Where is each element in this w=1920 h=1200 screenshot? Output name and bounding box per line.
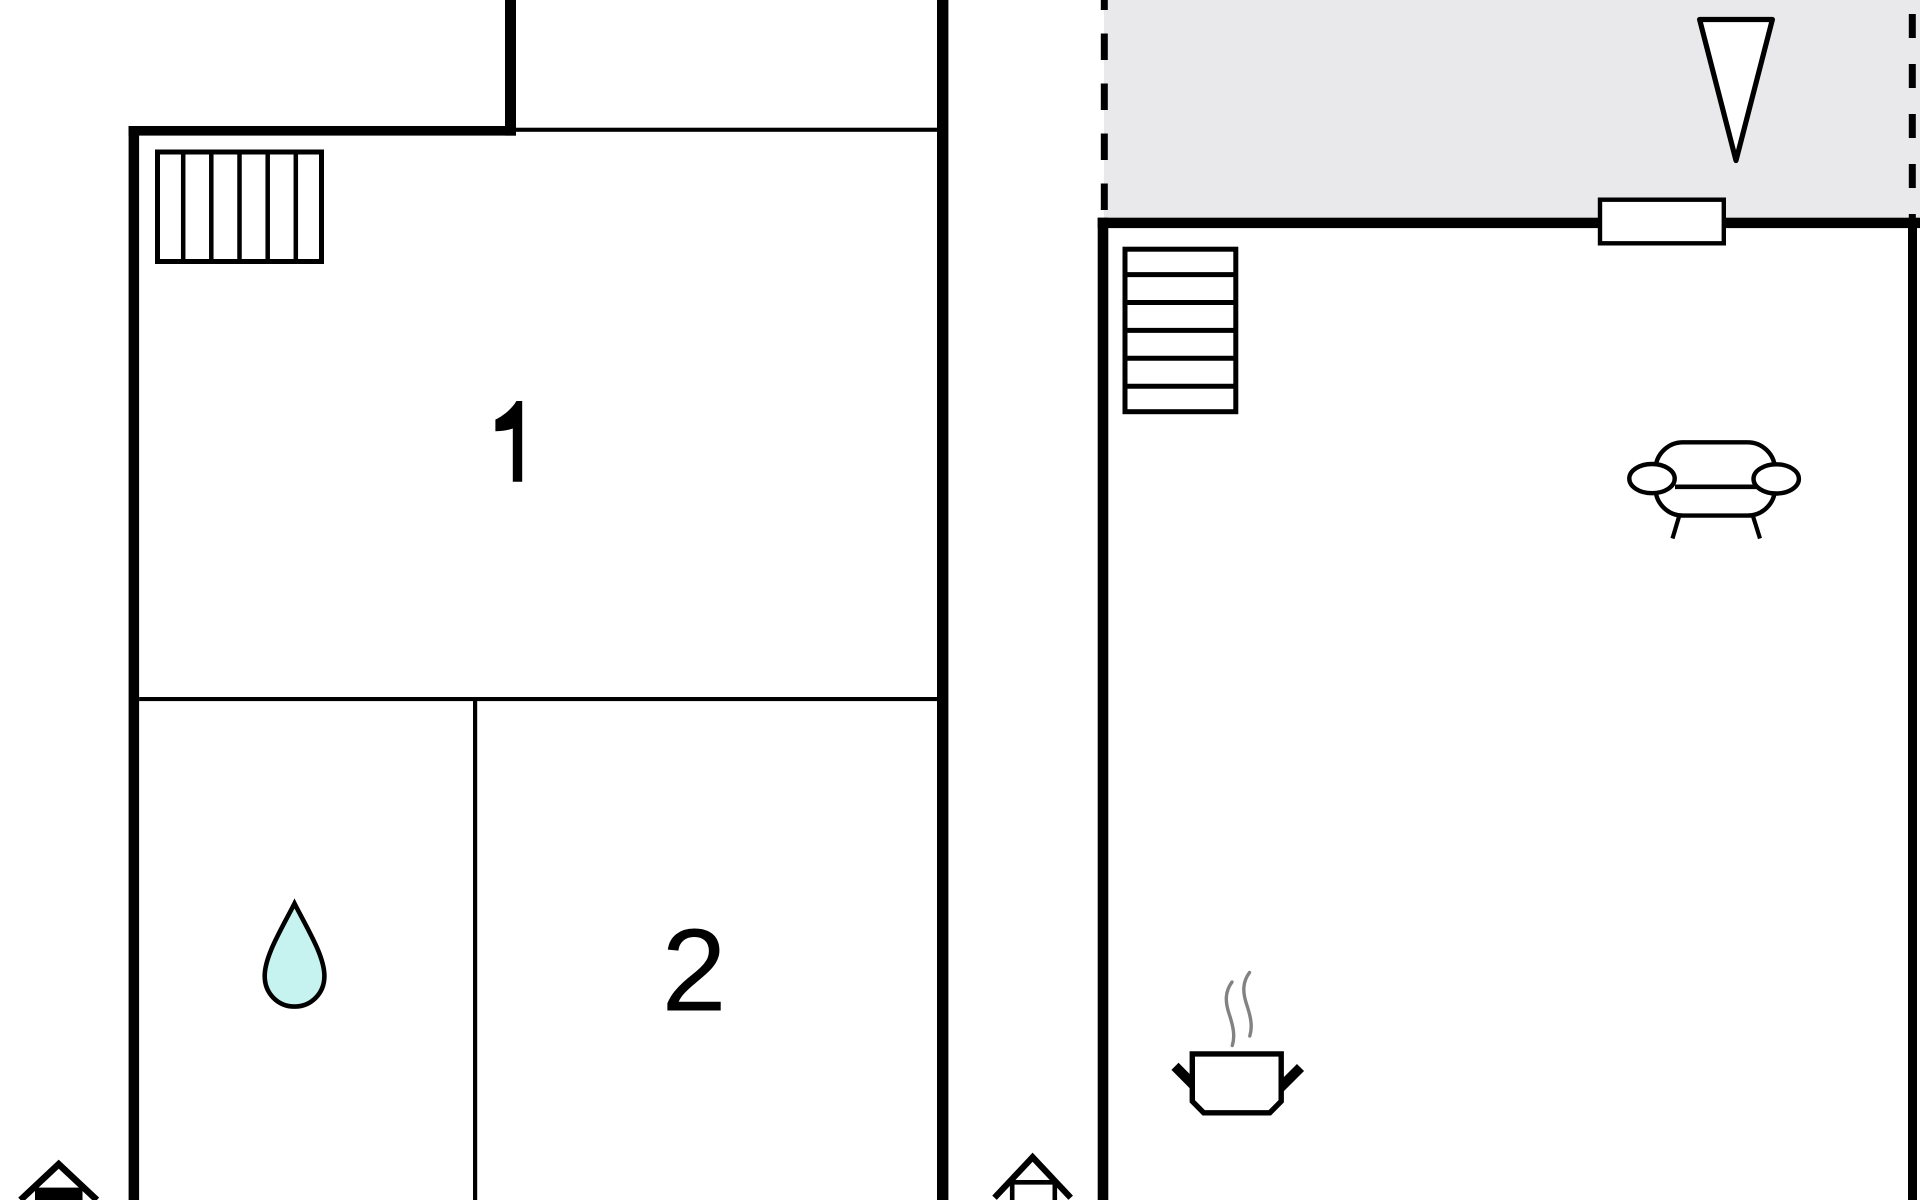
svg-text:2: 2 [661, 905, 726, 1036]
